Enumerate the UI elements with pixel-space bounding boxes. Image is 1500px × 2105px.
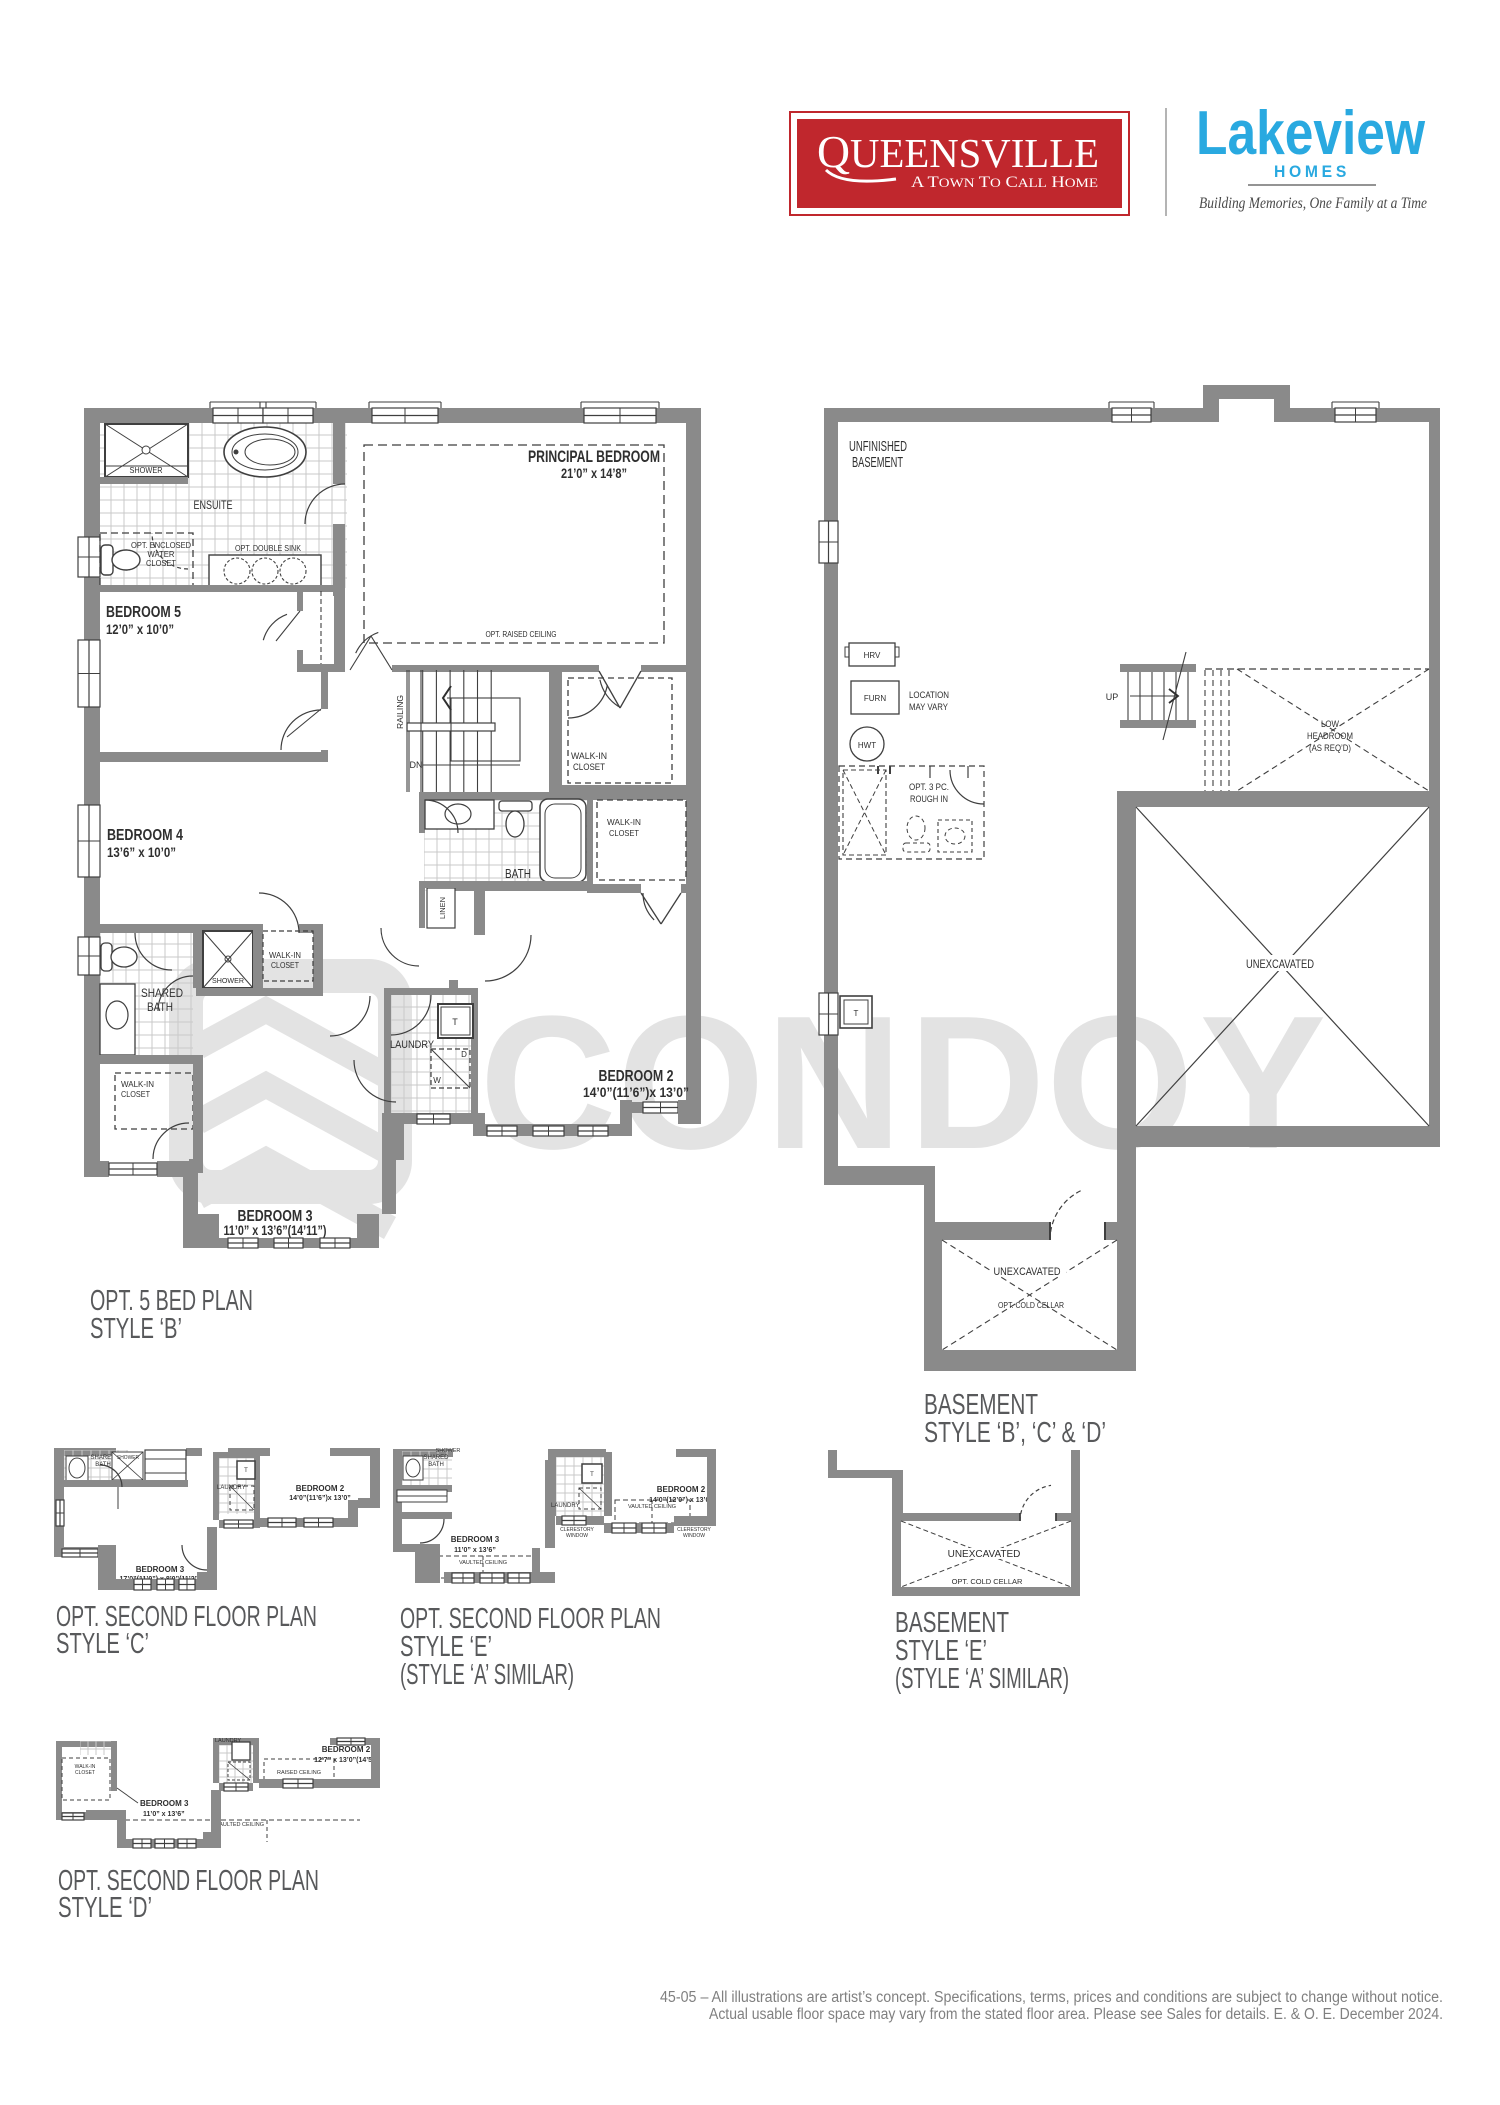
svg-text:CLOSET: CLOSET [146, 559, 176, 568]
svg-text:HWT: HWT [858, 741, 876, 750]
svg-text:C: C [479, 977, 616, 1189]
svg-text:(AS REQ’D): (AS REQ’D) [1309, 743, 1351, 754]
svg-text:BEDROOM 3: BEDROOM 3 [140, 1799, 189, 1808]
svg-text:21’0” x 14’8”: 21’0” x 14’8” [561, 465, 627, 481]
svg-text:14’0”(12’0”) x 13’0”: 14’0”(12’0”) x 13’0” [649, 1497, 713, 1504]
svg-text:LOW: LOW [1321, 719, 1339, 730]
svg-text:14’0”(11’6”)x 13’0”: 14’0”(11’6”)x 13’0” [289, 1495, 351, 1502]
svg-text:LAUNDRY: LAUNDRY [215, 1738, 242, 1744]
svg-text:LOCATION: LOCATION [909, 690, 949, 701]
svg-text:HOMES: HOMES [1274, 162, 1350, 181]
svg-text:Lakeview: Lakeview [1196, 99, 1426, 168]
svg-text:OPT. RAISED CEILING: OPT. RAISED CEILING [486, 629, 557, 639]
svg-text:VAULTED CEILING: VAULTED CEILING [216, 1822, 264, 1828]
svg-text:12’0” x 10’0”: 12’0” x 10’0” [106, 621, 174, 637]
svg-text:11’0” x 13’6”: 11’0” x 13’6” [454, 1547, 496, 1554]
svg-text:UNFINISHED: UNFINISHED [849, 439, 907, 455]
svg-text:11’0” x 13’6”: 11’0” x 13’6” [143, 1811, 185, 1818]
svg-text:OPT. COLD CELLAR: OPT. COLD CELLAR [952, 1577, 1023, 1586]
svg-text:RAISED CEILING: RAISED CEILING [277, 1770, 321, 1776]
svg-text:WALK-IN: WALK-IN [121, 1079, 154, 1089]
svg-text:Actual usable floor space may: Actual usable floor space may vary from … [709, 2006, 1443, 2023]
svg-text:SHOWER: SHOWER [436, 1448, 461, 1454]
svg-text:13’6” x 10’0”: 13’6” x 10’0” [107, 844, 176, 860]
svg-text:STYLE ‘B’: STYLE ‘B’ [90, 1313, 182, 1345]
svg-text:D: D [461, 1050, 467, 1059]
svg-text:OPT. 3 PC.: OPT. 3 PC. [909, 782, 949, 793]
svg-text:SHARED: SHARED [141, 986, 183, 1000]
svg-text:CLOSET: CLOSET [573, 762, 605, 772]
svg-text:BEDROOM 3: BEDROOM 3 [451, 1535, 500, 1544]
svg-text:WINDOW: WINDOW [566, 1533, 588, 1539]
svg-text:ENSUITE: ENSUITE [194, 498, 233, 512]
svg-text:PRINCIPAL BEDROOM: PRINCIPAL BEDROOM [528, 447, 660, 466]
svg-text:OPT. COLD CELLAR: OPT. COLD CELLAR [998, 1300, 1064, 1310]
svg-text:ROUGH IN: ROUGH IN [910, 794, 948, 805]
svg-text:RAILING: RAILING [395, 695, 405, 729]
svg-text:W: W [433, 1076, 441, 1085]
svg-text:BEDROOM 2: BEDROOM 2 [599, 1068, 674, 1085]
svg-text:QUEENSVILLE: QUEENSVILLE [817, 126, 1099, 177]
svg-text:OPT. DOUBLE SINK: OPT. DOUBLE SINK [235, 543, 301, 553]
svg-text:STYLE ‘B’, ‘C’ & ‘D’: STYLE ‘B’, ‘C’ & ‘D’ [924, 1417, 1106, 1449]
svg-text:BATH: BATH [505, 866, 531, 881]
svg-text:T: T [854, 1009, 859, 1018]
svg-text:Building Memories, One Family: Building Memories, One Family at a Time [1199, 195, 1427, 212]
svg-text:VAULTED CEILING: VAULTED CEILING [628, 1504, 676, 1510]
svg-text:T: T [452, 1017, 458, 1027]
svg-text:BATH: BATH [428, 1462, 444, 1468]
svg-text:SHARED: SHARED [423, 1455, 449, 1461]
svg-text:CLOSET: CLOSET [609, 828, 639, 838]
svg-text:MAY VARY: MAY VARY [909, 702, 949, 713]
svg-text:WALK-IN: WALK-IN [269, 951, 301, 960]
svg-text:LAUNDRY: LAUNDRY [217, 1485, 246, 1491]
svg-text:HRV: HRV [864, 651, 881, 660]
svg-text:11’0” x 13’6”(14’11”): 11’0” x 13’6”(14’11”) [224, 1222, 327, 1238]
svg-text:(STYLE ‘A’ SIMILAR): (STYLE ‘A’ SIMILAR) [400, 1659, 574, 1691]
svg-text:VAULTED CEILING: VAULTED CEILING [459, 1560, 507, 1566]
svg-text:WINDOW: WINDOW [683, 1533, 705, 1539]
svg-text:BASEMENT: BASEMENT [852, 455, 903, 471]
svg-text:LAUNDRY: LAUNDRY [390, 1039, 435, 1051]
svg-text:OPT. ENCLOSED: OPT. ENCLOSED [131, 541, 191, 550]
svg-text:BEDROOM 2: BEDROOM 2 [296, 1484, 345, 1493]
svg-text:Y: Y [1200, 977, 1327, 1189]
svg-text:WALK-IN: WALK-IN [571, 751, 607, 761]
svg-text:A TOWN TO CALL HOME: A TOWN TO CALL HOME [911, 174, 1098, 191]
svg-text:BEDROOM 2: BEDROOM 2 [322, 1745, 371, 1754]
svg-text:CLOSET: CLOSET [121, 1089, 150, 1099]
svg-text:SHOWER: SHOWER [130, 466, 163, 475]
svg-text:UNEXCAVATED: UNEXCAVATED [1246, 957, 1314, 971]
svg-text:SHOWER: SHOWER [117, 1455, 139, 1461]
svg-text:BEDROOM 4: BEDROOM 4 [107, 827, 183, 844]
svg-text:BATH: BATH [147, 1000, 173, 1014]
svg-text:CLOSET: CLOSET [271, 961, 299, 970]
svg-text:FURN: FURN [864, 694, 886, 703]
svg-text:BEDROOM 3: BEDROOM 3 [136, 1565, 185, 1574]
svg-text:14’0”(11’6”)x 13’0”: 14’0”(11’6”)x 13’0” [583, 1084, 689, 1100]
svg-text:HEADROOM: HEADROOM [1307, 731, 1353, 742]
svg-text:T: T [590, 1472, 594, 1478]
svg-text:D: D [908, 977, 1045, 1189]
svg-text:UP: UP [1106, 692, 1119, 702]
svg-text:LAUNDRY: LAUNDRY [551, 1503, 580, 1509]
svg-text:45-05 – All illustrations are: 45-05 – All illustrations are artist’s c… [660, 1989, 1443, 2006]
svg-text:UNEXCAVATED: UNEXCAVATED [948, 1549, 1021, 1560]
svg-text:WALK-IN: WALK-IN [607, 817, 641, 827]
svg-text:STYLE ‘C’: STYLE ‘C’ [56, 1628, 149, 1660]
svg-text:CLOSET: CLOSET [75, 1770, 95, 1776]
svg-text:12’7” x 13’0”(14’5”): 12’7” x 13’0”(14’5”) [314, 1757, 378, 1764]
svg-text:T: T [244, 1468, 248, 1474]
svg-text:SHOWER: SHOWER [212, 976, 245, 985]
svg-text:STYLE ‘D’: STYLE ‘D’ [58, 1892, 152, 1924]
svg-text:BEDROOM 2: BEDROOM 2 [657, 1485, 706, 1494]
svg-text:(STYLE ‘A’ SIMILAR): (STYLE ‘A’ SIMILAR) [895, 1663, 1069, 1695]
svg-text:LINEN: LINEN [438, 897, 447, 919]
svg-text:BEDROOM 5: BEDROOM 5 [106, 604, 181, 621]
svg-text:UNEXCAVATED: UNEXCAVATED [994, 1266, 1061, 1278]
